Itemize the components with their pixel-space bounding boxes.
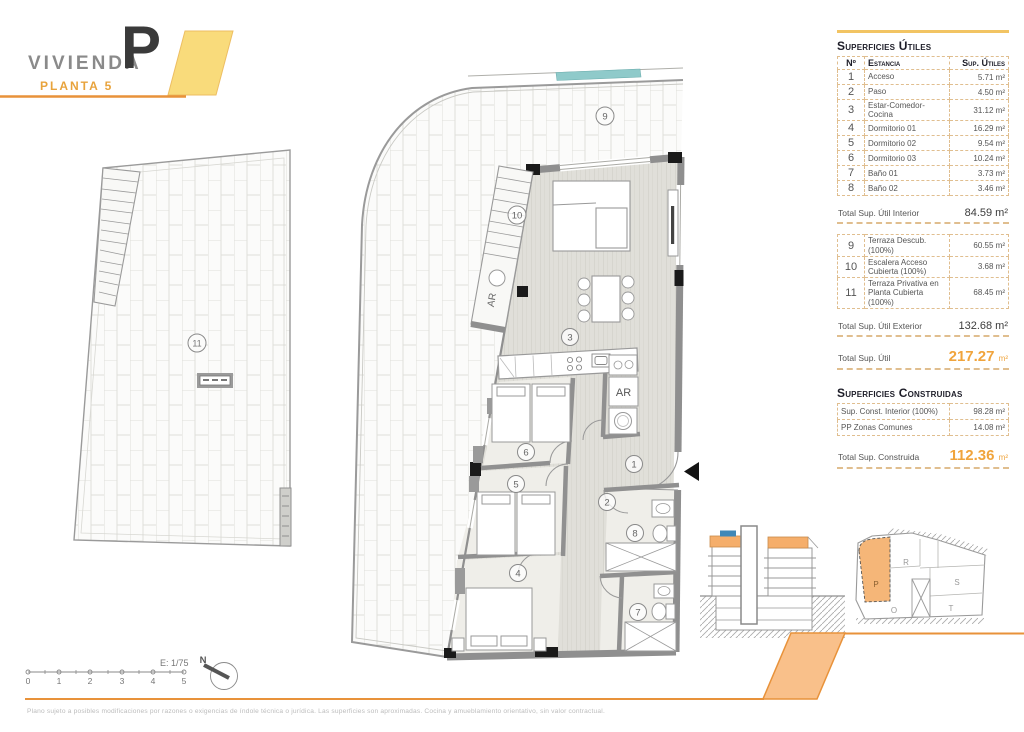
table-row: 5Dormitorio 029.54 m² — [838, 136, 1009, 151]
panel-accent-line — [837, 30, 1009, 33]
highlight-floor-left — [710, 536, 745, 547]
svg-text:1: 1 — [631, 460, 636, 471]
north-label: N — [200, 655, 207, 666]
room-label-11: 11 — [188, 334, 206, 352]
svg-text:3: 3 — [567, 333, 572, 344]
tv-unit — [668, 190, 678, 256]
total-exterior: Total Sup. Útil Exterior 132.68 m² — [837, 318, 1009, 337]
total-interior: Total Sup. Útil Interior 84.59 m² — [837, 205, 1009, 224]
unit-p-highlight — [859, 537, 890, 602]
closet-ar-label: AR — [616, 387, 631, 399]
washer-icon — [489, 270, 505, 286]
svg-text:9: 9 — [602, 112, 607, 123]
dining-table — [578, 276, 634, 322]
room-label-3: 3 — [562, 329, 579, 346]
shower-icon — [625, 622, 676, 651]
table-row: 11Terraza Privativa en Planta Cubierta (… — [838, 278, 1009, 309]
construidas-heading: Superficies Construidas — [837, 386, 1009, 400]
svg-text:6: 6 — [523, 448, 528, 459]
table-row: Sup. Const. Interior (100%)98.28 m² — [838, 403, 1009, 419]
north-arrow-icon: N — [200, 655, 238, 690]
room-number: 11 — [192, 339, 201, 349]
svg-text:4: 4 — [515, 569, 520, 580]
highlight-floor-right — [768, 537, 808, 548]
glass-skylight-strip — [556, 69, 641, 81]
svg-text:7: 7 — [635, 608, 640, 619]
svg-text:4: 4 — [151, 676, 156, 686]
room-label-5: 5 — [508, 476, 525, 493]
utiles-table: Nº Estancia Sup. Útiles 1Acceso5.71 m² 2… — [837, 56, 1009, 196]
room-label-7: 7 — [630, 604, 647, 621]
room-label-8: 8 — [627, 525, 644, 542]
svg-text:1: 1 — [57, 676, 62, 686]
construidas-table: Sup. Const. Interior (100%)98.28 m² PP Z… — [837, 403, 1009, 436]
total-util: Total Sup. Útil 217.27 m² — [837, 346, 1009, 370]
unit-letter: P — [121, 18, 161, 78]
roof-terrace-plan: 11 — [74, 150, 291, 546]
room-label-4: 4 — [510, 565, 527, 582]
entry-arrow-icon — [684, 462, 699, 481]
svg-text:3: 3 — [120, 676, 125, 686]
key-plan: P R S O T — [856, 528, 988, 624]
roof-ladder — [280, 488, 291, 546]
table-row: 7Baño 013.73 m² — [838, 166, 1009, 181]
col-room: Estancia — [865, 57, 950, 70]
pool-icon — [720, 531, 736, 537]
room-label-2: 2 — [599, 494, 616, 511]
table-row: 9Terraza Descub.(100%)60.55 m² — [838, 235, 1009, 256]
core-shaft — [741, 526, 757, 624]
bedroom1-bed — [452, 588, 546, 651]
col-area: Sup. Útiles — [950, 57, 1009, 70]
room-label-1: 1 — [626, 456, 643, 473]
page-subtitle: PLANTA 5 — [40, 79, 113, 93]
unit-label-t: T — [949, 604, 954, 613]
room-label-10: 10 — [508, 206, 526, 224]
unit-label-p: P — [873, 580, 878, 589]
exterior-table: 9Terraza Descub.(100%)60.55 m² 10Escaler… — [837, 234, 1009, 308]
core-box — [912, 579, 930, 617]
total-construida: Total Sup. Construida 112.36 m² — [837, 445, 1009, 469]
roof-vent — [197, 373, 233, 388]
disclaimer-text: Plano sujeto a posibles modificaciones p… — [27, 708, 987, 715]
svg-text:2: 2 — [604, 498, 609, 509]
sofa — [553, 181, 630, 251]
table-row: 1Acceso5.71 m² — [838, 70, 1009, 85]
unit-label-s: S — [954, 578, 959, 587]
plan-sheet: 11 — [0, 0, 1024, 732]
room-label-9: 9 — [596, 107, 614, 125]
footer-orange-band — [763, 633, 845, 699]
table-row: 6Dormitorio 0310.24 m² — [838, 151, 1009, 166]
table-row: 8Baño 023.46 m² — [838, 181, 1009, 196]
unit-label-r: R — [903, 558, 909, 567]
scale-label: E: 1/75 — [160, 658, 189, 668]
surfaces-panel: Superficies Útiles Nº Estancia Sup. Útil… — [837, 30, 1009, 469]
svg-text:0: 0 — [26, 676, 31, 686]
utiles-heading: Superficies Útiles — [837, 39, 1009, 53]
scale-bar: 0 1 2 3 4 5 E: 1/75 — [26, 658, 189, 686]
apartment-plan: AR — [352, 68, 699, 658]
table-row: 10Escalera Acceso Cubierta (100%)3.68 m² — [838, 256, 1009, 277]
shower-icon — [606, 543, 676, 571]
table-row: 2Paso4.50 m² — [838, 85, 1009, 100]
svg-text:2: 2 — [88, 676, 93, 686]
table-row: 4Dormitorio 0116.29 m² — [838, 121, 1009, 136]
svg-text:5: 5 — [182, 676, 187, 686]
svg-text:5: 5 — [513, 480, 518, 491]
col-num: Nº — [838, 57, 865, 70]
room-label-6: 6 — [518, 444, 535, 461]
svg-text:10: 10 — [512, 211, 523, 222]
table-row: PP Zonas Comunes14.08 m² — [838, 419, 1009, 435]
table-row: 3Estar-Comedor-Cocina31.12 m² — [838, 100, 1009, 121]
section-elevation — [700, 526, 845, 638]
unit-label-o: O — [891, 606, 897, 615]
header-yellow-band — [168, 31, 233, 95]
ar-closet: AR — [609, 355, 638, 434]
svg-text:8: 8 — [632, 529, 637, 540]
